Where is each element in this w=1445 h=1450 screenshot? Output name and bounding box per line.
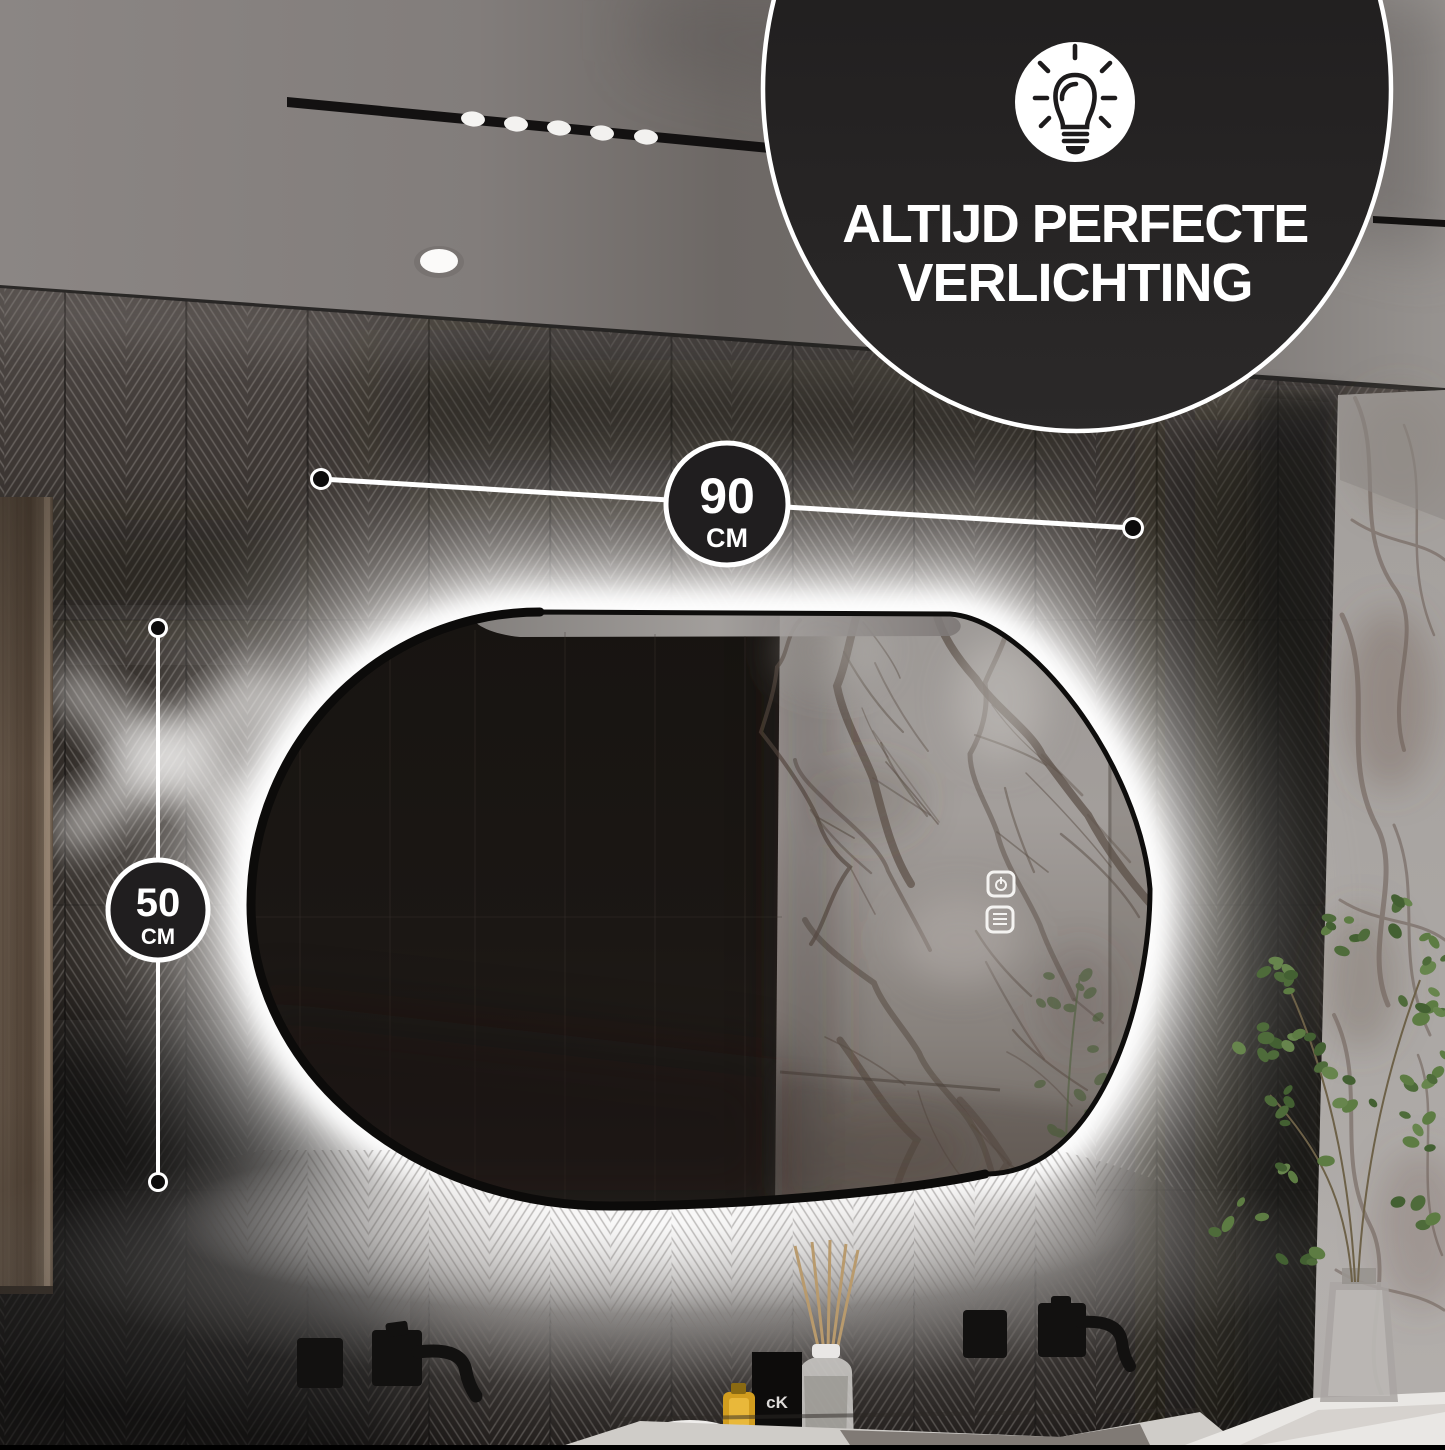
svg-text:VERLICHTING: VERLICHTING xyxy=(897,253,1252,313)
svg-text:CM: CM xyxy=(706,523,748,553)
svg-text:90: 90 xyxy=(699,468,755,524)
svg-text:50: 50 xyxy=(136,881,181,925)
svg-text:CM: CM xyxy=(141,924,175,949)
svg-text:ALTIJD PERFECTE: ALTIJD PERFECTE xyxy=(842,194,1308,254)
svg-text:cK: cK xyxy=(766,1393,788,1412)
